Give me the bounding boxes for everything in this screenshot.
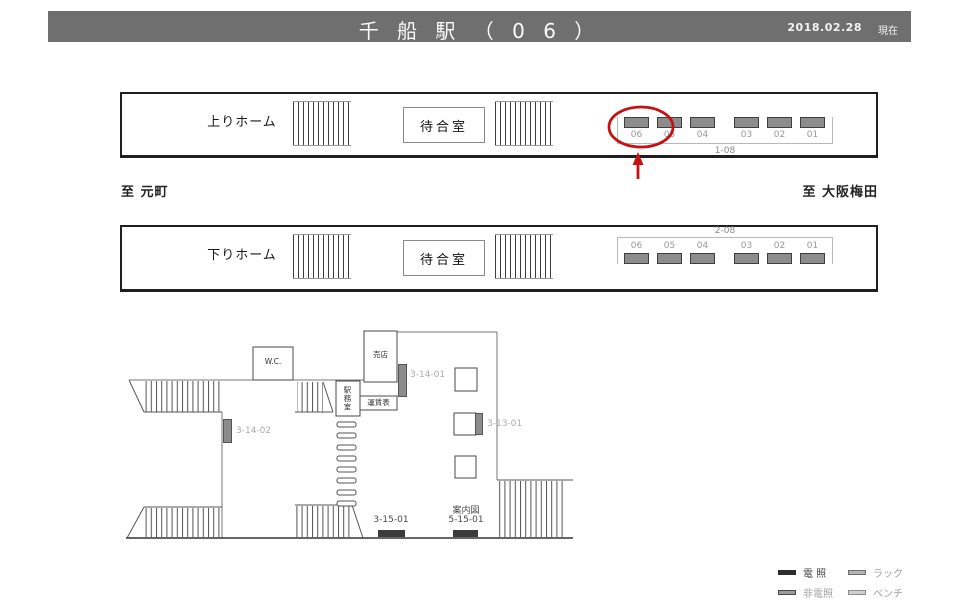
station-office-label: 駅務室	[342, 386, 353, 414]
ad-3-13-01[interactable]	[475, 413, 483, 435]
stairs-hatch	[293, 101, 351, 146]
stairs-lower-middle	[295, 505, 363, 538]
ad-position-bar-05[interactable]	[657, 117, 682, 128]
ad-position-bar-02[interactable]	[767, 253, 792, 264]
ad-3-13-01-label: 3-13-01	[487, 419, 522, 429]
stairs-lower-left	[127, 507, 222, 538]
legend-item-bench: ベンチ	[848, 585, 903, 600]
legend-label: ラック	[873, 565, 903, 580]
ad-position-number: 06	[624, 130, 649, 140]
legend-item-lit: 電 照	[778, 565, 848, 580]
ad-position-number: 05	[657, 241, 682, 251]
ad-position-number: 05	[657, 130, 682, 140]
ad-position-number: 01	[800, 130, 825, 140]
legend-item-rack: ラック	[848, 565, 903, 580]
ad-5-15-01[interactable]	[453, 530, 478, 537]
as-of-date: 2018.02.28	[787, 21, 862, 34]
upper-platform: 上りホーム 待合室 06 05 04 03 02 01 1-08	[120, 92, 878, 158]
stairs-lower-right	[497, 480, 573, 537]
ad-position-number: 04	[690, 130, 715, 140]
waiting-room-box: 待合室	[403, 107, 485, 143]
ad-position-bar-01[interactable]	[800, 253, 825, 264]
ad-position-number: 03	[734, 241, 759, 251]
ad-position-number: 01	[800, 241, 825, 251]
lower-platform-label: 下りホーム	[182, 244, 302, 263]
ad-position-bar-05[interactable]	[657, 253, 682, 264]
group-label: 2-08	[617, 226, 833, 236]
ad-3-14-02-label: 3-14-02	[236, 426, 271, 436]
as-of-label: 現在	[878, 22, 898, 37]
ad-3-15-01-label: 3-15-01	[366, 515, 416, 525]
legend: 電 照 ラック 非電照 ベンチ	[778, 562, 923, 602]
legend-label: 非電照	[803, 585, 833, 600]
stairs-upper-middle	[295, 382, 333, 412]
direction-label-left: 至 元町	[121, 181, 169, 200]
stairs-upper-left	[129, 380, 222, 412]
legend-label: ベンチ	[873, 585, 903, 600]
ad-position-number: 02	[767, 241, 792, 251]
ad-position-number: 02	[767, 130, 792, 140]
kiosk-label: 売店	[364, 351, 397, 359]
stairs-hatch	[495, 101, 553, 146]
ad-3-14-01[interactable]	[398, 364, 407, 397]
stairs-hatch	[293, 234, 351, 279]
ad-position-number: 03	[734, 130, 759, 140]
legend-item-unlit: 非電照	[778, 585, 848, 600]
ad-position-group-1-08: 06 05 04 03 02 01	[617, 117, 833, 144]
ad-3-15-01[interactable]	[378, 530, 405, 537]
ad-3-14-02[interactable]	[223, 419, 232, 443]
page-title: 千 船 駅 （ 0 6 ）	[48, 15, 911, 44]
station-ad-diagram: 千 船 駅 （ 0 6 ） 2018.02.28 現在 上りホーム 待合室 06…	[0, 0, 960, 605]
ad-position-bar-06[interactable]	[624, 117, 649, 128]
ad-position-bar-01[interactable]	[800, 117, 825, 128]
ad-3-14-01-label: 3-14-01	[410, 370, 445, 380]
unlit-bar-icon	[778, 590, 796, 595]
ad-position-bar-02[interactable]	[767, 117, 792, 128]
wc-label: W.C.	[253, 358, 293, 366]
lower-platform: 下りホーム 待合室 2-08 06 05 04 03 02 01	[120, 225, 878, 292]
bench-bar-icon	[848, 590, 866, 595]
stairs-hatch	[495, 234, 553, 279]
ad-position-group-2-08: 06 05 04 03 02 01	[617, 237, 833, 264]
pillars	[454, 368, 477, 478]
ad-position-bar-04[interactable]	[690, 117, 715, 128]
legend-label: 電 照	[803, 565, 826, 580]
group-label: 1-08	[617, 146, 833, 156]
fare-table-label: 運賃表	[360, 399, 397, 407]
ad-position-bar-03[interactable]	[734, 117, 759, 128]
upper-platform-label: 上りホーム	[182, 111, 302, 130]
ticket-gates	[337, 422, 356, 506]
waiting-room-box: 待合室	[403, 240, 485, 276]
header-bar: 千 船 駅 （ 0 6 ） 2018.02.28 現在	[48, 11, 911, 42]
rack-bar-icon	[848, 570, 866, 575]
ad-position-number: 06	[624, 241, 649, 251]
ad-position-number: 04	[690, 241, 715, 251]
ad-5-15-01-label: 5-15-01	[441, 515, 491, 525]
ad-position-bar-04[interactable]	[690, 253, 715, 264]
lit-bar-icon	[778, 570, 796, 575]
concourse-map	[120, 325, 580, 547]
ad-position-bar-06[interactable]	[624, 253, 649, 264]
ad-position-bar-03[interactable]	[734, 253, 759, 264]
direction-label-right: 至 大阪梅田	[760, 181, 878, 200]
